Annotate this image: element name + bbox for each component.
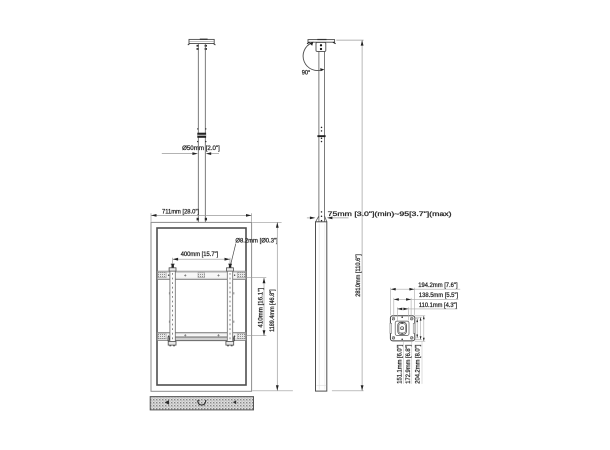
svg-text:172.9mm [6.8"]: 172.9mm [6.8"] <box>405 344 412 383</box>
svg-text:2810mm [110.6"]: 2810mm [110.6"] <box>355 254 362 297</box>
svg-text:194.2mm [7.6"]: 194.2mm [7.6"] <box>418 282 458 289</box>
svg-text:1189.4mm [46.8"]: 1189.4mm [46.8"] <box>269 289 276 332</box>
svg-text:204.2mm [8.0"]: 204.2mm [8.0"] <box>415 344 422 383</box>
svg-text:90°: 90° <box>302 70 311 77</box>
svg-text:Ø50mm [2.0"]: Ø50mm [2.0"] <box>182 145 220 152</box>
svg-text:711mm [28.0"]: 711mm [28.0"] <box>162 208 199 215</box>
svg-text:110.1mm [4.3"]: 110.1mm [4.3"] <box>419 302 458 309</box>
svg-text:75mm [3.0"](min)~95[3.7"](max): 75mm [3.0"](min)~95[3.7"](max) <box>328 211 452 218</box>
svg-text:410mm [16.1"]: 410mm [16.1"] <box>257 288 264 328</box>
svg-text:138.5mm [5.5"]: 138.5mm [5.5"] <box>419 292 458 299</box>
svg-text:400mm [15.7"]: 400mm [15.7"] <box>181 251 219 258</box>
svg-text:151.1mm [6.0"]: 151.1mm [6.0"] <box>397 344 404 383</box>
svg-text:Ø8.2mm [Ø0.3"]: Ø8.2mm [Ø0.3"] <box>235 237 278 244</box>
